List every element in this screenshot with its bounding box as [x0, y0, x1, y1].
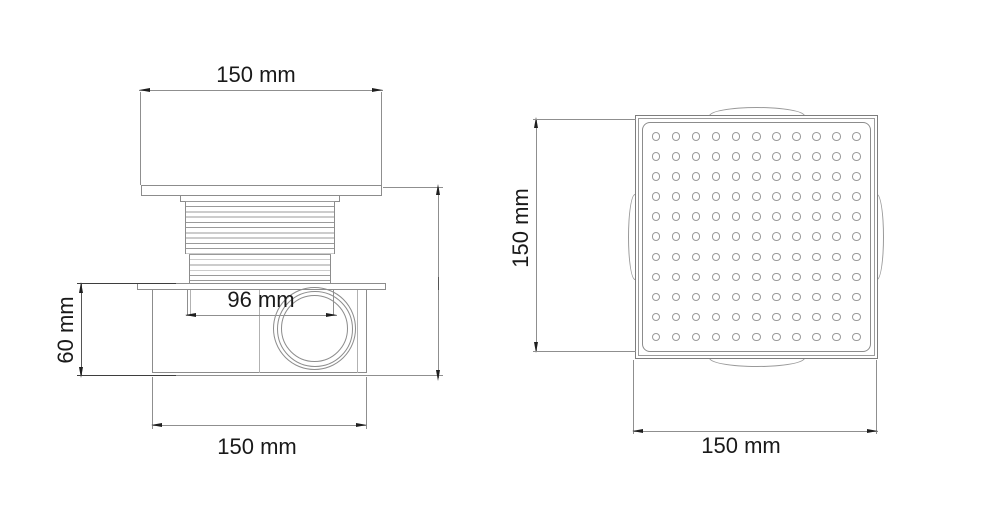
arrow-left-icon: [632, 429, 643, 433]
arrow-down-icon: [79, 367, 83, 378]
top-view-height-label: 150 mm: [508, 188, 534, 267]
grate-hole: [792, 152, 801, 161]
grate-hole: [712, 293, 721, 302]
threaded-riser-lower: [189, 254, 331, 284]
grate-hole: [652, 313, 661, 322]
grate-hole: [852, 333, 861, 342]
grate-hole: [812, 152, 821, 161]
body-inner-wall-line: [357, 290, 358, 373]
extension-line: [383, 187, 443, 188]
grate-hole: [732, 293, 741, 302]
grate-hole: [812, 232, 821, 241]
grate-hole: [772, 333, 781, 342]
grate-hole: [752, 212, 761, 221]
grate-hole: [792, 333, 801, 342]
grate-hole: [792, 212, 801, 221]
grate-hole: [672, 253, 681, 262]
grate-hole: [732, 212, 741, 221]
grate-hole: [792, 313, 801, 322]
grate-hole: [812, 192, 821, 201]
grate-hole: [712, 333, 721, 342]
grate-hole: [672, 313, 681, 322]
extension-line: [533, 119, 636, 120]
grate-hole: [852, 232, 861, 241]
grate-hole: [852, 132, 861, 141]
grate-hole: [752, 273, 761, 282]
grate-hole: [672, 212, 681, 221]
grate-hole: [652, 293, 661, 302]
inner-width-dimension-line: [186, 315, 337, 316]
grate-hole: [852, 313, 861, 322]
grate-hole: [752, 192, 761, 201]
grate-hole: [852, 253, 861, 262]
extension-line: [77, 375, 176, 376]
side-inner-width-label: 96 mm: [227, 287, 294, 313]
grate-hole: [672, 152, 681, 161]
grate-hole: [672, 172, 681, 181]
grate-hole: [752, 253, 761, 262]
side-height-label: 60 mm: [53, 296, 79, 363]
grate-hole: [732, 313, 741, 322]
grate-hole: [852, 212, 861, 221]
grate-hole: [812, 333, 821, 342]
extension-line: [77, 283, 176, 284]
grate-hole: [832, 333, 841, 342]
grate-hole: [812, 172, 821, 181]
grate-hole: [812, 313, 821, 322]
grate-hole: [772, 152, 781, 161]
grate-hole: [712, 313, 721, 322]
grate-hole: [812, 293, 821, 302]
grate-hole: [812, 273, 821, 282]
grate-hole: [692, 273, 701, 282]
grate-hole: [832, 313, 841, 322]
grate-hole: [732, 273, 741, 282]
grate-hole: [852, 192, 861, 201]
grate-hole: [732, 192, 741, 201]
grate-hole: [812, 132, 821, 141]
grate-hole: [832, 152, 841, 161]
arrow-left-icon: [151, 423, 162, 427]
grate-hole: [832, 192, 841, 201]
top-view-height-dimension-line: [536, 119, 537, 352]
grate-hole: [672, 333, 681, 342]
grate-hole: [672, 192, 681, 201]
extension-line: [152, 377, 153, 429]
grate-hole: [832, 132, 841, 141]
grate-hole: [732, 333, 741, 342]
grate-hole: [792, 273, 801, 282]
grate-hole: [732, 152, 741, 161]
grate-hole: [792, 192, 801, 201]
grate-panel: [642, 122, 871, 352]
grate-hole: [752, 293, 761, 302]
grate-hole: [852, 152, 861, 161]
grate-hole: [792, 232, 801, 241]
top-view-width-label: 150 mm: [701, 433, 780, 459]
grate-hole: [672, 232, 681, 241]
extension-line: [633, 360, 634, 434]
grate-hole: [772, 192, 781, 201]
grate-hole: [732, 132, 741, 141]
grate-hole: [692, 152, 701, 161]
grate-hole: [752, 232, 761, 241]
grate-hole: [652, 192, 661, 201]
arrow-down-icon: [436, 370, 440, 381]
grate-hole: [812, 253, 821, 262]
side-bottom-width-label: 150 mm: [217, 434, 296, 460]
grate-hole: [772, 132, 781, 141]
grate-hole: [672, 132, 681, 141]
grate-hole: [712, 253, 721, 262]
grate-hole: [652, 232, 661, 241]
grate-hole: [752, 333, 761, 342]
grate-hole: [652, 132, 661, 141]
technical-drawing-floor-drain: 150 mm 96 mm 60 mm: [0, 0, 1000, 505]
grate-hole: [832, 232, 841, 241]
extension-line: [533, 351, 636, 352]
grate-hole: [692, 172, 701, 181]
grate-hole: [712, 212, 721, 221]
grate-hole: [652, 253, 661, 262]
grate-hole: [792, 132, 801, 141]
extension-line: [876, 360, 877, 434]
grate-hole: [692, 132, 701, 141]
grate-hole: [672, 273, 681, 282]
grate-hole: [772, 253, 781, 262]
grate-hole: [832, 293, 841, 302]
grate-hole: [712, 172, 721, 181]
arrow-up-icon: [436, 184, 440, 195]
grate-hole: [732, 232, 741, 241]
height-dimension-line: [81, 284, 82, 376]
grate-hole: [652, 333, 661, 342]
grate-hole: [692, 313, 701, 322]
side-bottom-dimension-line: [152, 425, 367, 426]
grate-hole: [712, 232, 721, 241]
grate-hole: [712, 132, 721, 141]
grate-hole: [712, 273, 721, 282]
arrow-right-icon: [867, 429, 878, 433]
grate-hole: [692, 212, 701, 221]
arrow-right-icon: [326, 313, 337, 317]
grate-hole: [772, 313, 781, 322]
grate-hole: [652, 212, 661, 221]
side-top-width-label: 150 mm: [216, 62, 295, 88]
grate-hole: [832, 253, 841, 262]
grate-hole: [852, 273, 861, 282]
grate-hole: [772, 212, 781, 221]
grate-hole: [752, 152, 761, 161]
grate-hole: [692, 333, 701, 342]
grate-hole: [772, 273, 781, 282]
grate-hole: [712, 192, 721, 201]
grate-hole: [832, 212, 841, 221]
grate-hole: [652, 152, 661, 161]
grate-hole: [692, 192, 701, 201]
grate-hole: [792, 293, 801, 302]
grate-hole: [812, 212, 821, 221]
grate-hole: [732, 253, 741, 262]
top-view-width-dimension-line: [633, 431, 878, 432]
grate-hole: [792, 253, 801, 262]
grate-hole: [732, 172, 741, 181]
grate-hole: [692, 293, 701, 302]
dimension-line-segment: [438, 277, 439, 290]
grate-hole: [672, 293, 681, 302]
grate-hole: [692, 232, 701, 241]
grate-hole: [832, 172, 841, 181]
grate-hole: [652, 172, 661, 181]
grate-hole: [652, 273, 661, 282]
grate-hole: [752, 313, 761, 322]
grate-hole: [772, 232, 781, 241]
grate-hole: [752, 172, 761, 181]
grate-hole: [852, 172, 861, 181]
grate-hole: [712, 152, 721, 161]
grate-hole: [792, 172, 801, 181]
arrow-left-icon: [185, 313, 196, 317]
side-top-dimension-line: [139, 90, 383, 91]
grate-hole: [752, 132, 761, 141]
threaded-riser-upper: [185, 201, 335, 254]
grate-hole: [772, 172, 781, 181]
extension-line: [176, 375, 443, 376]
extension-line: [381, 92, 382, 185]
grate-hole: [832, 273, 841, 282]
arrow-right-icon: [356, 423, 367, 427]
extension-line: [366, 377, 367, 429]
grate-hole: [692, 253, 701, 262]
extension-line: [140, 92, 141, 185]
grate-hole: [852, 293, 861, 302]
grate-hole: [772, 293, 781, 302]
